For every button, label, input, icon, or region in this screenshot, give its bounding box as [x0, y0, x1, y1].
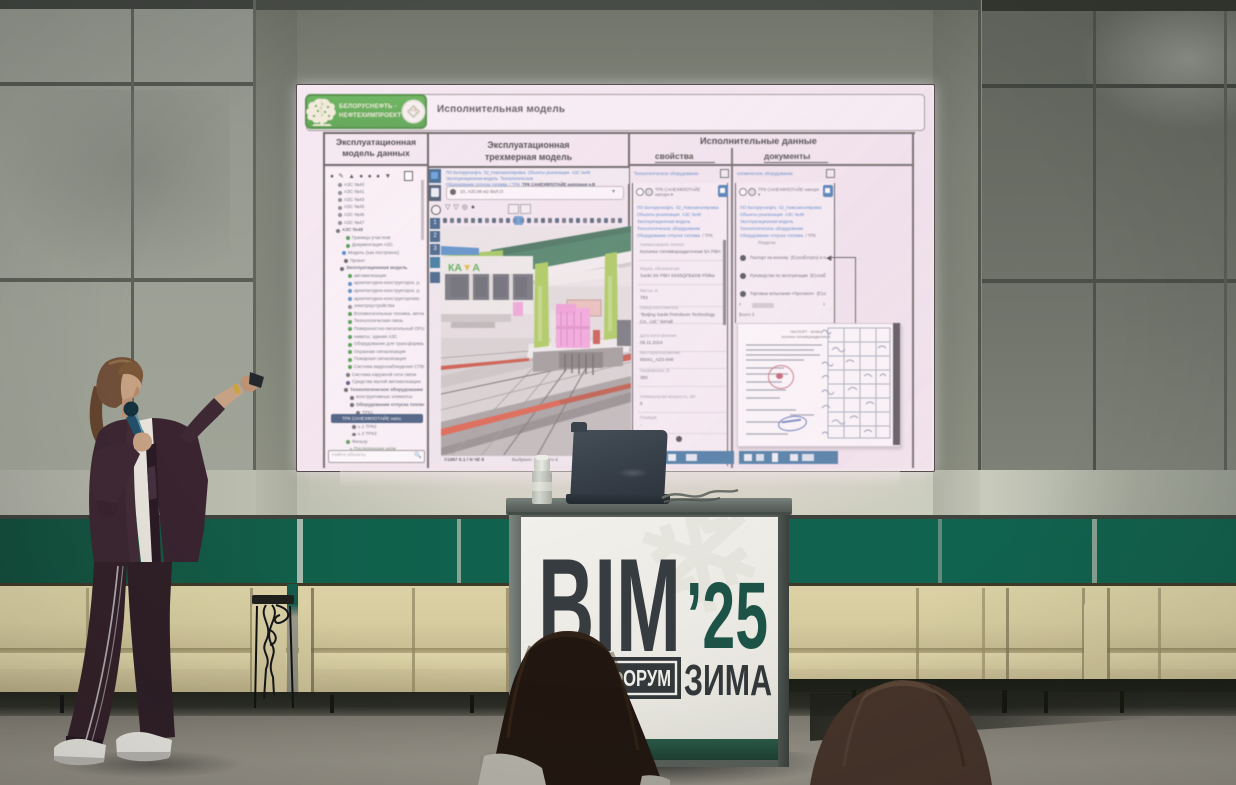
svg-text:’25: ’25: [686, 563, 768, 669]
svg-text:ЗИМА: ЗИМА: [684, 656, 772, 705]
